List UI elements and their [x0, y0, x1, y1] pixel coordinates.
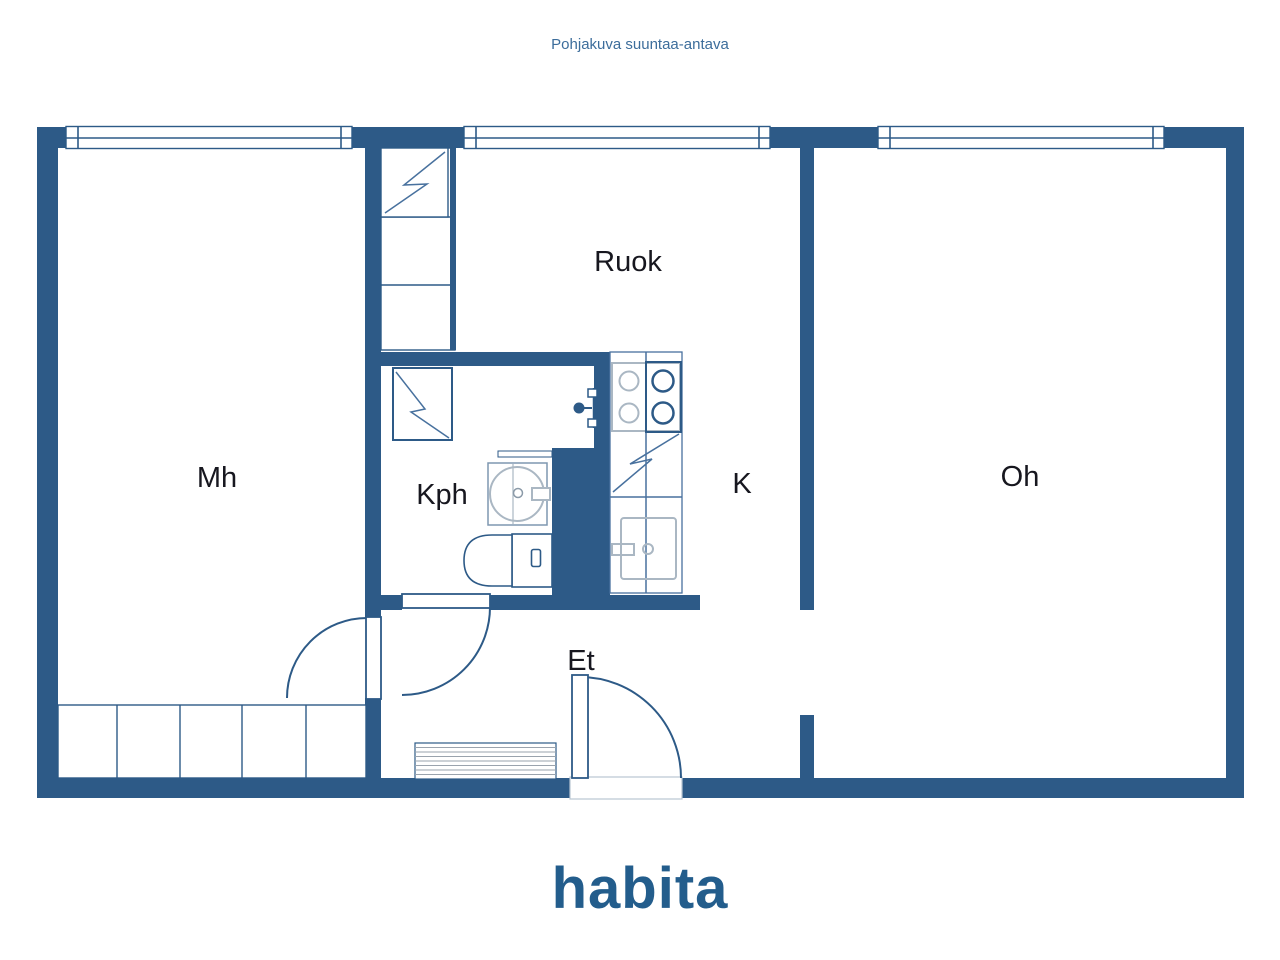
door-entrance: [570, 675, 682, 799]
wall-kph-bottom-left: [365, 595, 402, 610]
toilet-icon: [464, 534, 552, 587]
ruok-closet-column: [381, 148, 456, 350]
duct-shaft: [552, 448, 610, 610]
wall-kph-top: [365, 352, 610, 366]
wall-oh-upper: [800, 148, 814, 610]
room-label-k: K: [732, 468, 752, 500]
wall-oh-lower: [800, 715, 814, 778]
windows: [66, 127, 1164, 149]
mh-closet-row: [58, 705, 366, 778]
room-label-kph: Kph: [416, 479, 468, 511]
closet-column-edge: [450, 148, 456, 350]
wall-right: [1226, 127, 1244, 798]
floor-plan-canvas: Pohjakuva suuntaa-antava: [0, 0, 1280, 960]
bathroom-sink-icon: [488, 463, 550, 525]
door-kph: [402, 594, 490, 695]
window-ruok: [464, 127, 770, 149]
wall-kph-k-divider: [594, 352, 610, 452]
room-label-et: Et: [567, 645, 594, 677]
kitchen-counter: [610, 352, 682, 593]
shower-valve-icon: [574, 388, 598, 428]
entry-mat-icon: [415, 743, 556, 779]
window-oh: [878, 127, 1164, 149]
room-label-oh: Oh: [1001, 461, 1040, 493]
washing-machine-icon: [393, 368, 452, 440]
room-label-ruok: Ruok: [594, 246, 662, 278]
floor-plan-page: Pohjakuva suuntaa-antava: [0, 0, 1280, 960]
habita-logo: habita: [552, 856, 729, 921]
wall-left: [37, 127, 58, 798]
door-mh: [287, 617, 381, 699]
room-label-mh: Mh: [197, 462, 237, 494]
wall-mh-upper: [365, 148, 381, 617]
wall-mh-lower: [365, 698, 381, 778]
plan-disclaimer-title: Pohjakuva suuntaa-antava: [551, 36, 729, 53]
window-mh: [66, 127, 352, 149]
bathroom-shelf: [498, 451, 552, 457]
